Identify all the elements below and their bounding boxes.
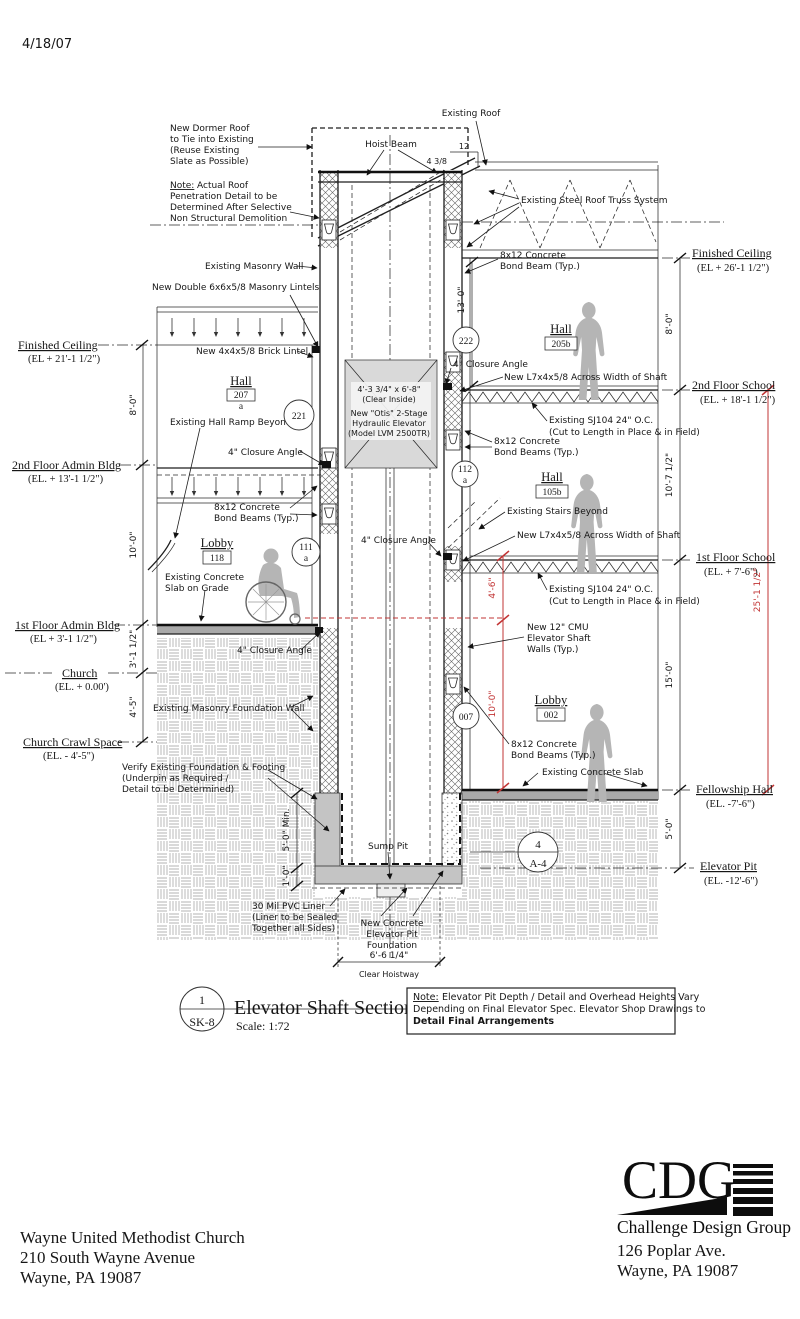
dim-right-1: 8'-0" (665, 313, 675, 334)
label-hoist-beam: Hoist Beam (365, 140, 417, 150)
tag-112: 112 (458, 465, 472, 475)
dim-pit-depth: 5'-0" Min. (282, 808, 292, 851)
label-hall-ramp: Existing Hall Ramp Beyond (170, 418, 292, 428)
tag-222: 222 (459, 337, 474, 347)
level-2nd-school: 2nd Floor School (692, 378, 776, 392)
wheelchair-person-icon (246, 549, 300, 625)
level-el: (EL. + 7'-6") (704, 567, 758, 578)
cab-model: New "Otis" 2-StageHydraulic Elevator(Mod… (348, 409, 430, 438)
label-stairs-beyond: Existing Stairs Beyond (507, 507, 608, 517)
level-el: (EL. + 13'-1 1/2") (28, 474, 104, 485)
label-sump-pit: Sump Pit (368, 842, 408, 852)
label-slab-on-grade: Existing ConcreteSlab on Grade (165, 573, 245, 594)
level-elevator-pit: Elevator Pit (700, 859, 758, 873)
pit-detail-sheet: A-4 (529, 858, 547, 870)
label-steel-truss: Existing Steel Roof Truss System (521, 196, 667, 206)
level-el: (EL. -7'-6") (706, 799, 755, 810)
section-scale: Scale: 1:72 (236, 1019, 290, 1033)
section-detail-number: 1 (199, 993, 205, 1007)
section-title: Elevator Shaft Section A (234, 997, 433, 1019)
label-bond-beams-center: 8x12 ConcreteBond Beams (Typ.) (494, 437, 579, 458)
dim-left-4: 4'-5" (129, 696, 139, 717)
level-el: (EL + 26'-1 1/2") (697, 263, 770, 274)
dim-red-total: 25'-1 1/2" (753, 568, 763, 612)
firm-logo: CDG Challenge Design Group (617, 1150, 791, 1237)
sheet-date: 4/18/07 (22, 37, 72, 52)
label-dormer-roof: New Dormer Roofto Tie into Existing(Reus… (170, 124, 254, 167)
label-sj104-1: Existing SJ104 24" O.C.(Cut to Length in… (549, 416, 700, 438)
drawing-canvas: 4/18/07 New Dormer Roofto Tie into Exist… (0, 0, 800, 1319)
dim-right-3: 15'-0" (665, 661, 675, 688)
label-existing-roof: Existing Roof (442, 109, 501, 119)
label-masonry-lintels: New Double 6x6x5/8 Masonry Lintels (152, 283, 320, 293)
label-roof-note-prefix: Note: (170, 181, 194, 191)
level-el: (EL. - 4'-5") (43, 751, 95, 762)
tag-007: 007 (459, 713, 474, 723)
label-foundation-wall: Existing Masonry Foundation Wall (153, 704, 305, 714)
dim-right-2: 10'-7 1/2" (665, 453, 675, 497)
dim-red-upper: 4'-6" (488, 577, 498, 598)
note-box-line1: Elevator Pit Depth / Detail and Overhead… (442, 992, 700, 1003)
level-el: (EL. -12'-6") (704, 876, 758, 887)
person-icon (573, 302, 604, 400)
label-closure-angle-2b: 4" Closure Angle (453, 360, 528, 370)
pit-detail-number: 4 (535, 839, 541, 851)
room-hall-105b: Hall (541, 470, 563, 484)
label-slope-run: 12 (459, 142, 469, 151)
level-el: (EL + 21'-1 1/2") (28, 354, 101, 365)
dim-pit-slab: 1'-0" (282, 865, 292, 886)
logo-firm-name: Challenge Design Group (617, 1217, 791, 1237)
dim-left-1: 8'-0" (129, 394, 139, 415)
dim-left-2: 10'-0" (129, 531, 139, 558)
client-name: Wayne United Methodist Church (20, 1228, 245, 1247)
client-address1: 210 South Wayne Avenue (20, 1248, 195, 1267)
label-bond-beams-left: 8x12 ConcreteBond Beams (Typ.) (214, 503, 299, 524)
label-closure-angle-3: 4" Closure Angle (361, 536, 436, 546)
label-pvc-liner: 30 Mil PVC Liner(Liner to be SealedToget… (251, 902, 337, 934)
level-1st-admin: 1st Floor Admin Bldg (15, 618, 120, 632)
label-l7-angle-1: New L7x4x5/8 Across Width of Shaft (504, 373, 668, 383)
label-sj104-2: Existing SJ104 24" O.C.(Cut to Length in… (549, 585, 700, 607)
label-closure-angle-1: 4" Closure Angle (228, 448, 303, 458)
person-icon (571, 474, 602, 572)
cab-size: 4'-3 3/4" x 6'-8" (357, 385, 420, 394)
firm-address2: Wayne, PA 19087 (617, 1261, 739, 1280)
label-concrete-slab: Existing Concrete Slab (542, 768, 644, 778)
label-existing-masonry-wall: Existing Masonry Wall (205, 262, 303, 272)
label-brick-lintel: New 4x4x5/8 Brick Lintel (196, 347, 308, 357)
room-number-002: 002 (544, 711, 559, 721)
dim-shaft-top: 13'-0" (457, 286, 467, 313)
label-bond-beam-right: 8x12 ConcreteBond Beam (Typ.) (500, 251, 580, 272)
firm-address1: 126 Poplar Ave. (617, 1241, 726, 1260)
room-number-105b: 105b (543, 488, 562, 498)
tag-111: 111 (299, 543, 313, 553)
room-hall-205b: Hall (550, 322, 572, 336)
level-1st-school: 1st Floor School (696, 550, 776, 564)
note-box-line3: Detail Final Arrangements (413, 1016, 554, 1027)
label-cmu-walls: New 12" CMUElevator ShaftWalls (Typ.) (527, 623, 591, 655)
level-el: (EL. + 18'-1 1/2") (700, 395, 776, 406)
label-slope-rise: 4 3/8 (426, 157, 447, 166)
room-lobby-118: Lobby (201, 536, 234, 550)
label-l7-angle-2: New L7x4x5/8 Across Width of Shaft (517, 531, 681, 541)
tag-221: 221 (292, 412, 307, 422)
level-2nd-admin: 2nd Floor Admin Bldg (12, 458, 121, 472)
dim-hoistway: 6'-6 1/4" (370, 951, 409, 961)
room-lobby-002: Lobby (535, 693, 568, 707)
room-number-207: 207 (234, 391, 249, 401)
title-block: 1 SK-8 Elevator Shaft Section A Scale: 1… (180, 987, 706, 1034)
label-pit-foundation: New ConcreteElevator PitFoundation (360, 919, 424, 951)
room-hall-207: Hall (230, 374, 252, 388)
note-box-line2: Depending on Final Elevator Spec. Elevat… (413, 1004, 706, 1015)
room-number-118: 118 (210, 554, 224, 564)
label-roof-note-line1: Actual Roof (197, 181, 249, 191)
room-suffix-207a: a (239, 402, 244, 412)
section-sheet-number: SK-8 (189, 1015, 214, 1029)
dim-red-lower: 10'-0" (488, 690, 498, 717)
label-roof-note: Penetration Detail to beDetermined After… (170, 192, 292, 224)
level-finished-ceiling-right: Finished Ceiling (692, 246, 772, 260)
logo-bars-icon (733, 1164, 773, 1216)
level-el: (EL. + 0.00') (55, 682, 109, 693)
level-crawl-space: Church Crawl Space (23, 735, 122, 749)
note-box-prefix: Note: (413, 992, 439, 1003)
cab-clear: (Clear Inside) (362, 395, 416, 404)
level-finished-ceiling-left: Finished Ceiling (18, 338, 98, 352)
room-number-205b: 205b (552, 340, 571, 350)
label-clear-hoistway: Clear Hoistway (359, 970, 419, 979)
level-church: Church (62, 666, 97, 680)
drawing-sheet: 4/18/07 New Dormer Roofto Tie into Exist… (0, 0, 800, 1319)
level-fellowship-hall: Fellowship Hall (696, 782, 774, 796)
label-closure-angle-4: 4" Closure Angle (237, 646, 312, 656)
level-el: (EL + 3'-1 1/2") (30, 634, 97, 645)
dim-left-3: 3'-1 1/2" (129, 630, 139, 669)
dim-right-4: 5'-0" (665, 818, 675, 839)
client-address2: Wayne, PA 19087 (20, 1268, 142, 1287)
